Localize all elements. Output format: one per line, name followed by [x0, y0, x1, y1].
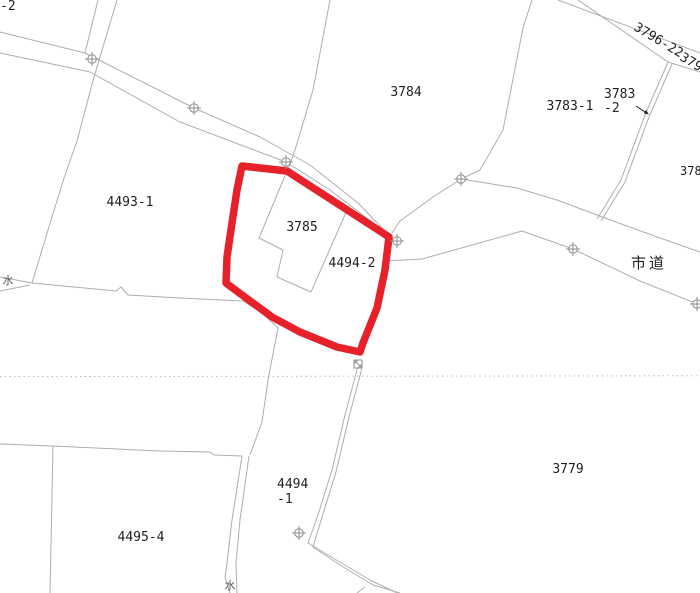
parcel-label-4494-1: 4494-1 — [277, 477, 308, 507]
map-canvas — [0, 0, 700, 593]
boundary-west-channel-top — [0, 277, 278, 455]
parcel-label-4494-1-line1: 4494 — [277, 477, 308, 492]
channel-south-right-edge — [236, 456, 249, 593]
boundary-4495-4-north — [0, 444, 242, 456]
boundary-marker-icon — [566, 242, 580, 256]
boundary-marker-icon — [690, 297, 700, 311]
road-edge-shido-upper — [461, 179, 700, 252]
water-mark-south: 水 — [225, 579, 236, 593]
channel-east-inner-edge — [308, 366, 397, 593]
water-mark-nw: 水 — [3, 274, 14, 288]
parcel-label-4494-1-line2: -1 — [277, 492, 293, 507]
road-name-label: 市道 — [631, 256, 667, 270]
branch-road-right-edge — [32, 0, 117, 283]
boundary-3784-south — [392, 179, 461, 233]
boundary-marker-icon — [292, 526, 306, 540]
boundary-3784-east — [461, 0, 532, 179]
parcel-label-4494-2: 4494-2 — [329, 257, 376, 271]
parcel-label-4493-1: 4493-1 — [107, 196, 154, 210]
survey-point-icon — [354, 360, 362, 368]
boundary-bottom-spur — [357, 587, 365, 593]
boundary-marker-icon — [454, 172, 468, 186]
cadastral-map: -2 4493-1 3785 4494-2 3784 3783-1 3783-2… — [0, 0, 700, 593]
parcel-label-3783-1: 3783-1 — [547, 100, 594, 114]
parcel-label-3779: 3779 — [552, 463, 583, 477]
road-edge-nw-bottom — [0, 53, 392, 237]
parcel-label-3783-2: 3783-2 — [604, 88, 635, 116]
boundary-3784-west — [288, 0, 330, 170]
parcel-label-378-cut: 378 — [680, 164, 700, 178]
channel-east-outer-edge — [313, 368, 400, 593]
parcel-label-3783-2-line2: -2 — [604, 101, 620, 116]
branch-road-left-edge — [85, 0, 98, 53]
boundary-4495-4-west — [50, 446, 53, 593]
parcel-label-3783-2-line1: 3783 — [604, 87, 635, 102]
parcel-label-4495-4: 4495-4 — [118, 531, 165, 545]
parcel-label-3785: 3785 — [286, 221, 317, 235]
section-dotted-line — [0, 376, 700, 377]
boundary-3783-2-west — [597, 62, 668, 219]
parcel-label-cut-left: -2 — [0, 0, 16, 14]
parcel-label-3784: 3784 — [390, 86, 421, 100]
boundary-marker-icon — [187, 101, 201, 115]
